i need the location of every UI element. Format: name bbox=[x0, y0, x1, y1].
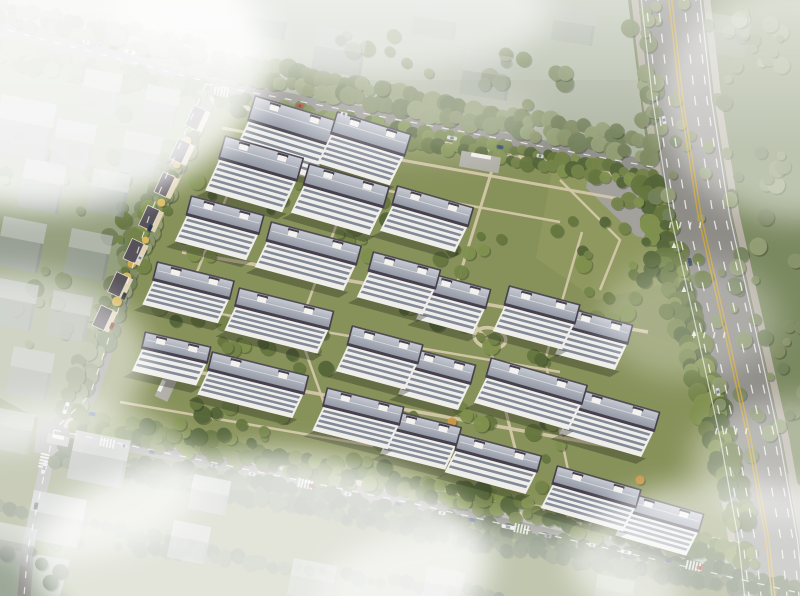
tree bbox=[783, 320, 796, 333]
car-windshield bbox=[716, 390, 719, 393]
tree bbox=[766, 373, 774, 381]
tree bbox=[190, 428, 207, 445]
tree bbox=[749, 238, 767, 256]
tree bbox=[783, 338, 791, 346]
tree bbox=[477, 333, 486, 342]
tree bbox=[584, 251, 592, 259]
tree bbox=[550, 224, 563, 237]
fog-patch bbox=[300, 80, 540, 160]
fog-patch bbox=[600, 260, 780, 380]
tree bbox=[462, 246, 476, 260]
tree bbox=[473, 416, 489, 432]
rendering-root bbox=[0, 0, 800, 596]
tree bbox=[519, 156, 534, 171]
tree bbox=[157, 199, 165, 207]
tree bbox=[636, 476, 645, 485]
tree bbox=[236, 419, 247, 430]
tree bbox=[188, 173, 205, 190]
tree bbox=[221, 342, 233, 354]
tree bbox=[142, 237, 149, 244]
tree bbox=[777, 362, 789, 374]
tree bbox=[660, 220, 670, 230]
ghost-block bbox=[63, 228, 113, 281]
tree bbox=[629, 261, 638, 270]
tree bbox=[476, 232, 484, 240]
tree bbox=[116, 235, 124, 243]
tree bbox=[771, 344, 785, 358]
tree bbox=[535, 481, 548, 494]
tree bbox=[454, 265, 468, 279]
tree bbox=[611, 197, 624, 210]
tree bbox=[318, 361, 333, 376]
tree bbox=[669, 171, 677, 179]
tree bbox=[639, 148, 658, 167]
tree bbox=[584, 287, 594, 297]
tree bbox=[541, 454, 549, 462]
tree bbox=[246, 438, 256, 448]
tree bbox=[217, 428, 231, 442]
tree bbox=[571, 164, 585, 178]
tree bbox=[173, 417, 187, 431]
tree bbox=[599, 217, 610, 228]
tree bbox=[599, 172, 610, 183]
tree bbox=[568, 216, 578, 226]
tree bbox=[618, 222, 630, 234]
aerial-scene-svg bbox=[0, 0, 800, 596]
tree bbox=[714, 398, 726, 410]
tree bbox=[641, 237, 650, 246]
tree bbox=[258, 426, 269, 437]
tree bbox=[634, 197, 645, 208]
tree bbox=[496, 234, 506, 244]
tree bbox=[523, 510, 531, 518]
tree bbox=[662, 208, 675, 221]
tree bbox=[478, 244, 490, 256]
tree bbox=[534, 353, 547, 366]
